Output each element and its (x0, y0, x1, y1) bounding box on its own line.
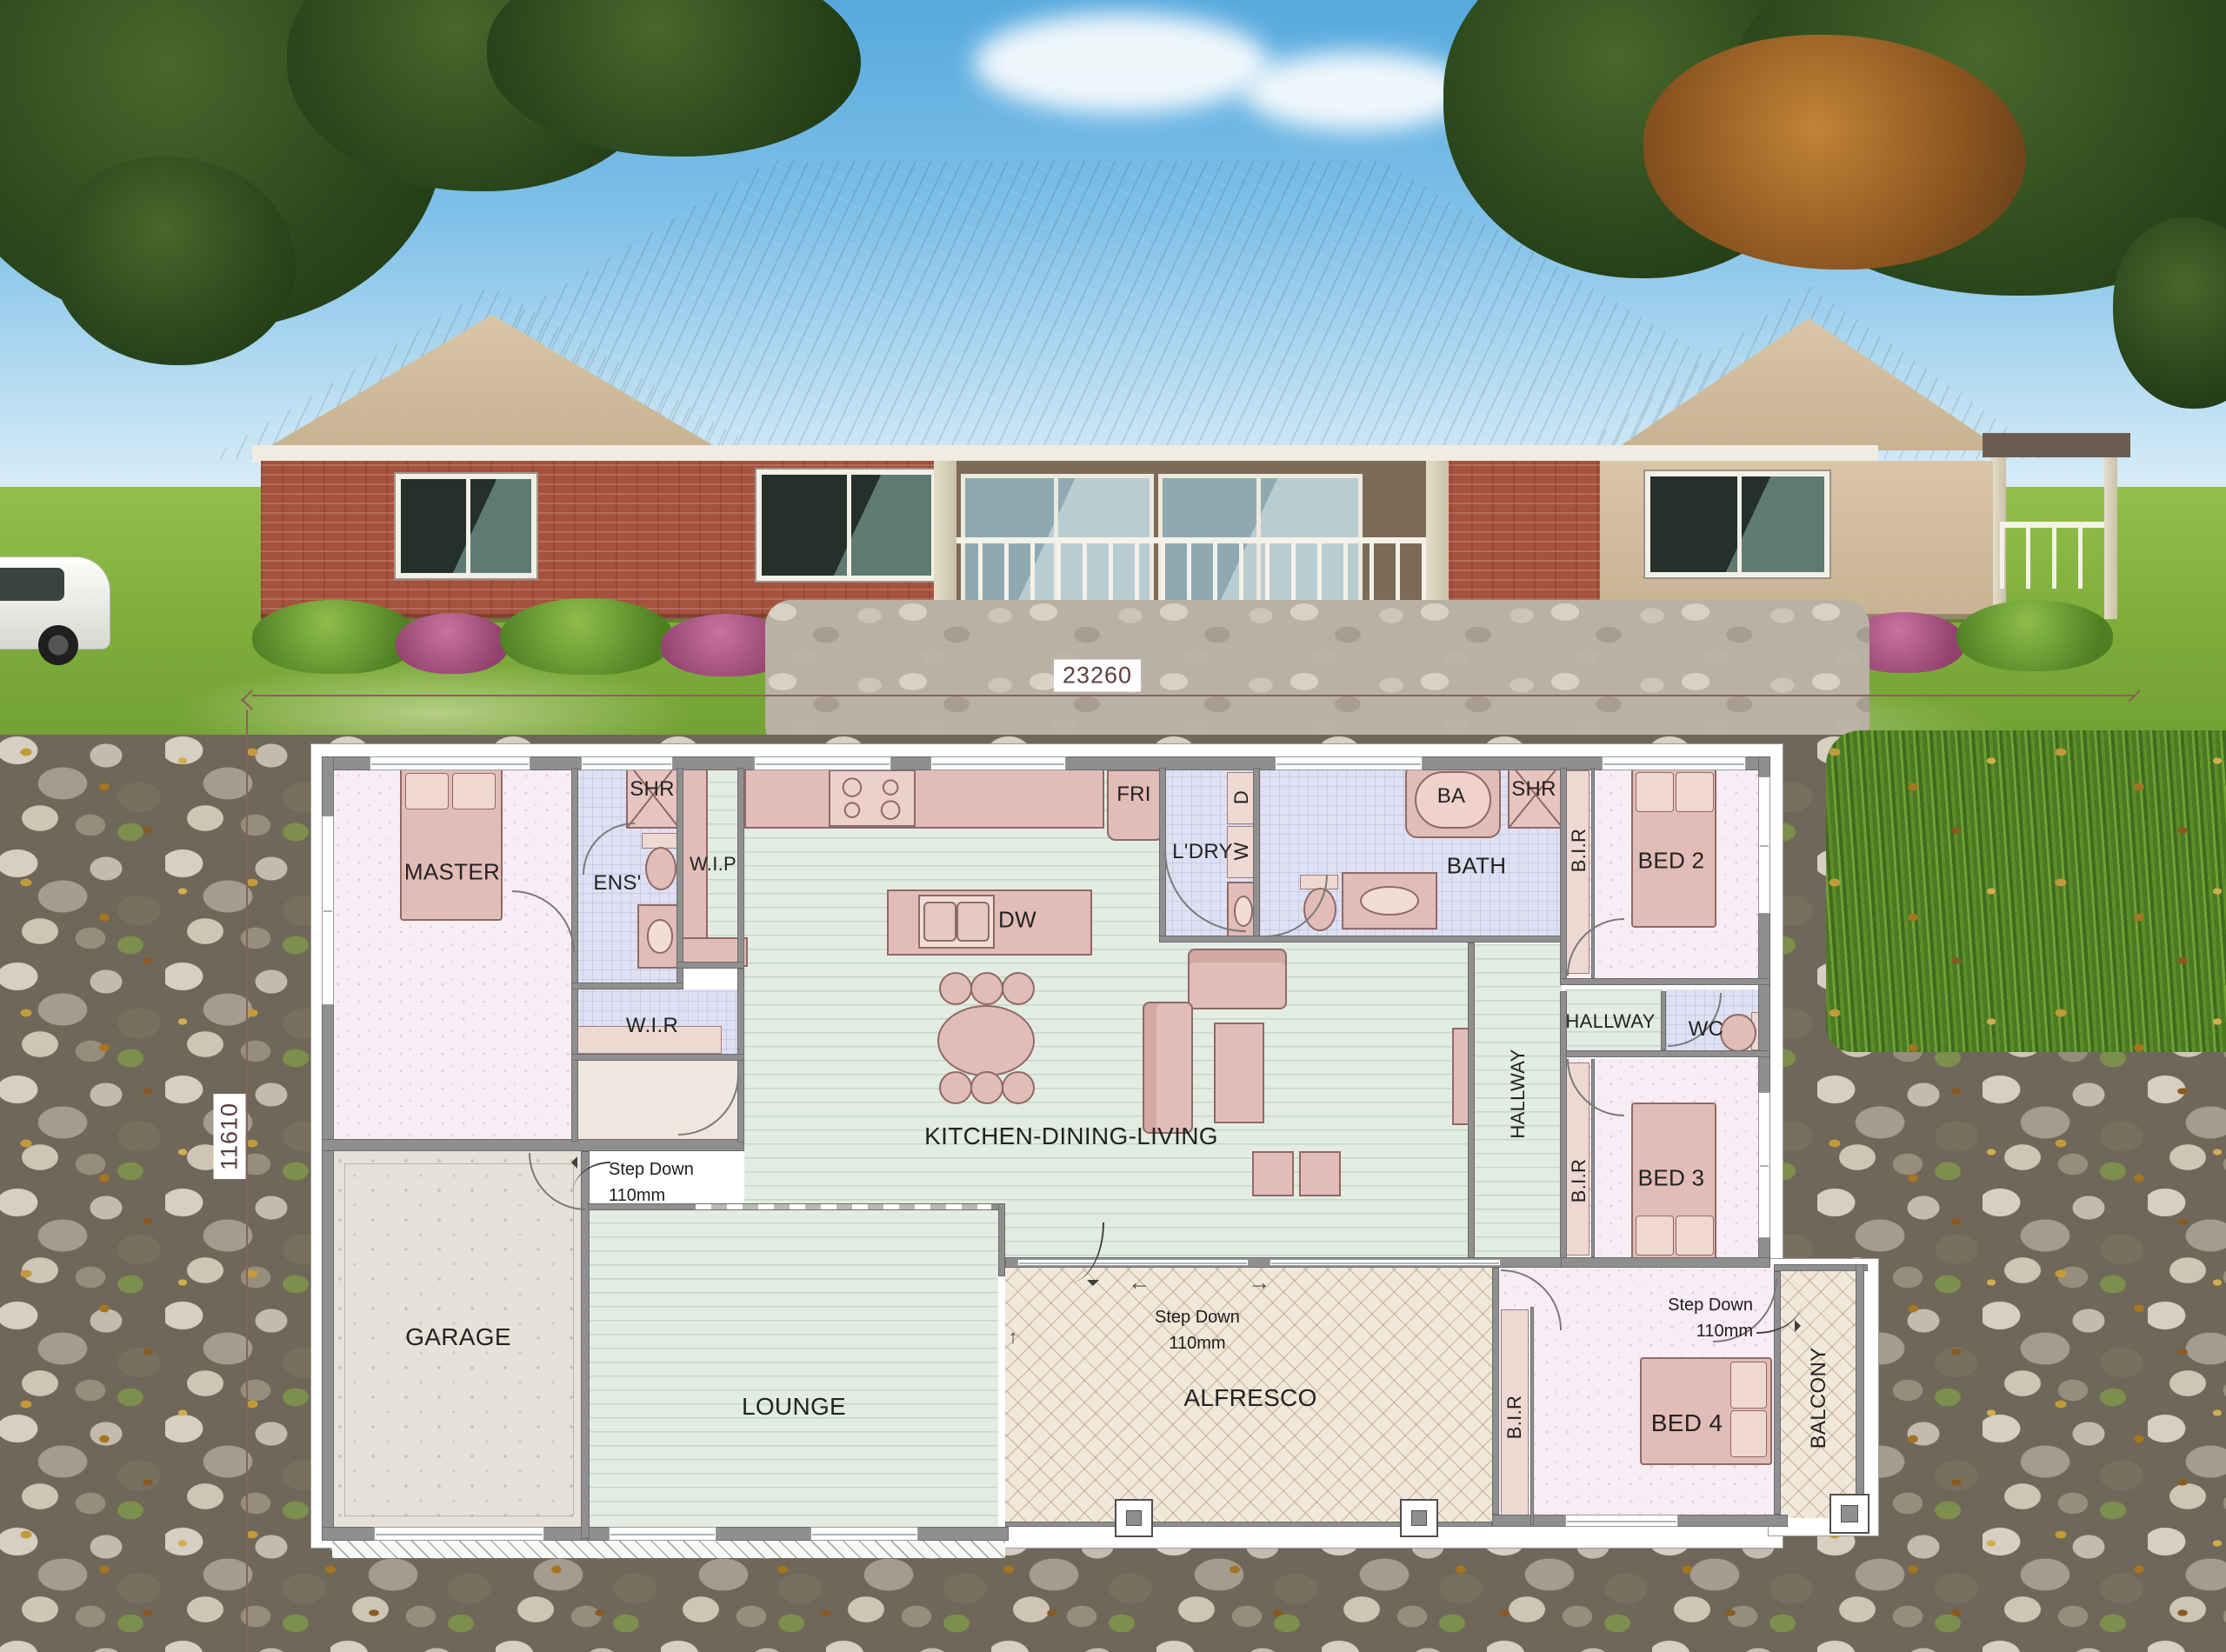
wall (1560, 1050, 1770, 1057)
room-label-bir-bed2: B.I.R (1568, 829, 1590, 872)
wall (1560, 1257, 1770, 1268)
room-label-kitchen-dining-living: KITCHEN-DINING-LIVING (924, 1122, 1218, 1150)
chair-icon (939, 1071, 972, 1104)
dimension-line-horizontal (252, 695, 2136, 696)
room-label-ensuite: ENS' (593, 871, 641, 896)
window (609, 1527, 716, 1541)
room-label-bed3: BED 3 (1638, 1165, 1705, 1192)
sliding-door-glass (1017, 1259, 1249, 1266)
flower-bush (396, 613, 509, 674)
alfresco-post (1400, 1499, 1438, 1537)
pillow-icon (1676, 772, 1714, 812)
room-label-bir-bed4: B.I.R (1503, 1396, 1526, 1439)
ottoman-icon (1252, 1151, 1294, 1196)
slide-arrow-right-icon: → (1248, 1269, 1270, 1296)
window (930, 756, 1066, 770)
chair-icon (970, 972, 1003, 1005)
wall (676, 768, 683, 989)
coffee-table-icon (1214, 1023, 1264, 1123)
room-label-laundry: L'DRY (1172, 840, 1233, 864)
wall (1492, 1268, 1499, 1515)
wall (676, 962, 744, 969)
wall (1774, 1264, 1868, 1271)
pillow-icon (1730, 1362, 1767, 1409)
chair-icon (970, 1071, 1003, 1104)
lounge-opening (696, 1204, 991, 1209)
room-label-wc: WC (1689, 1017, 1724, 1042)
window (1758, 1092, 1770, 1238)
bush (1956, 600, 2113, 671)
window (1275, 756, 1423, 770)
room-label-bed4: BED 4 (1651, 1409, 1723, 1437)
pillow-icon (1636, 1216, 1674, 1256)
bush (252, 600, 417, 674)
alfresco-post (1115, 1499, 1153, 1537)
window (1602, 756, 1746, 770)
car (0, 556, 110, 649)
bush (500, 598, 674, 675)
carport-roof (1983, 433, 2130, 457)
wall (1468, 943, 1475, 1268)
eave-fascia (252, 445, 1878, 463)
wall (322, 1139, 744, 1151)
window (1565, 1515, 1678, 1527)
room-label-bed2: BED 2 (1638, 848, 1705, 875)
chair-icon (939, 972, 972, 1005)
chair-icon (1002, 1071, 1035, 1104)
stove-icon (829, 769, 916, 827)
step-down-note-alfresco: Step Down 110mm (1155, 1304, 1240, 1356)
real-estate-render-with-floorplan: { "plan": { "dimensions": { "width": "23… (0, 0, 2226, 1652)
room-label-bath: BATH (1447, 853, 1507, 880)
pillow-icon (1676, 1216, 1714, 1256)
car-window (0, 568, 64, 601)
room-label-hallway-upper: HALLWAY (1565, 1010, 1655, 1033)
window-left-wing (396, 474, 537, 578)
dimension-width: 23260 (1054, 660, 1141, 692)
room-label-hallway-main: HALLWAY (1507, 1049, 1530, 1138)
room-label-wip: W.I.P (690, 853, 736, 876)
room-label-master: MASTER (404, 859, 500, 886)
ottoman-icon (1299, 1151, 1341, 1196)
wall (571, 768, 578, 1142)
dimension-height: 11610 (214, 1094, 246, 1179)
dimension-line-vertical (246, 709, 248, 1652)
dining-table-icon (937, 1005, 1035, 1076)
room-label-lounge: LOUNGE (742, 1393, 846, 1421)
arrowhead (565, 1156, 577, 1169)
lounge-floor (590, 1209, 998, 1530)
carport-post (2104, 457, 2117, 619)
driveway-apron (332, 1541, 1005, 1558)
toilet-icon-wc (1720, 1014, 1756, 1052)
wall (1560, 768, 1567, 985)
wall (1856, 1264, 1864, 1522)
cloud (974, 13, 1270, 113)
window (810, 1527, 918, 1541)
sofa-icon (1143, 1002, 1193, 1134)
floor-plan: ← → ↑ Step Down 110mm Step Down 110mm St… (322, 746, 1869, 1559)
sink-icon (918, 895, 995, 949)
car-wheel (38, 625, 78, 665)
window (1758, 776, 1770, 914)
lounge-arrow-icon: ↑ (1009, 1326, 1018, 1349)
pillow-icon (1730, 1410, 1767, 1457)
wall (571, 983, 683, 989)
window (754, 756, 891, 770)
fixture-label-dishwasher: DW (998, 907, 1036, 934)
step-down-note-balcony: Step Down 110mm (1640, 1292, 1753, 1344)
carport-railing (2000, 522, 2104, 589)
garage-door-opening (374, 1527, 544, 1541)
room-label-bir-bed3: B.I.R (1568, 1159, 1590, 1202)
wall (1560, 978, 1770, 985)
wall (1530, 1307, 1534, 1525)
arrowhead (1795, 1320, 1807, 1332)
chair-icon (1002, 972, 1035, 1005)
wall (998, 1203, 1005, 1276)
window-right-wing (1645, 471, 1829, 577)
slide-arrow-left-icon: ← (1128, 1269, 1150, 1296)
fixture-label-fridge: FRI (1116, 783, 1151, 807)
window (322, 816, 334, 1005)
room-label-alfresco: ALFRESCO (1183, 1384, 1316, 1412)
window-centre-left (756, 470, 936, 581)
room-label-garage: GARAGE (405, 1323, 511, 1351)
wall (1661, 991, 1666, 1050)
window (370, 756, 530, 770)
pillow-icon (1636, 772, 1674, 812)
fixture-label-washer: W (1230, 842, 1253, 860)
pillow-icon (452, 773, 496, 809)
room-label-shower-bath: SHR (1511, 777, 1556, 802)
toilet-icon-ensuite (645, 847, 676, 890)
arrowhead (1087, 1280, 1099, 1292)
room-label-shower-ensuite: SHR (630, 777, 675, 802)
wall (571, 1054, 744, 1061)
step-down-note-garage: Step Down 110mm (609, 1156, 694, 1209)
pillow-icon (405, 773, 449, 809)
cloud (1243, 52, 1470, 130)
wall (737, 768, 744, 969)
wall (1253, 768, 1260, 943)
sofa-icon (1188, 949, 1287, 1009)
room-label-balcony: BALCONY (1807, 1348, 1831, 1449)
room-label-wir: W.I.R (626, 1014, 678, 1038)
cobble-path (765, 600, 1869, 752)
balcony-post (1829, 1494, 1869, 1534)
kitchen-bench-icon (744, 768, 1104, 829)
fixture-label-dryer: D (1230, 790, 1253, 804)
fixture-label-bath: BA (1437, 784, 1466, 809)
window (581, 756, 673, 770)
vanity-icon-bath (1342, 872, 1437, 929)
sliding-door-glass (1270, 1259, 1501, 1266)
wall (1159, 936, 1567, 943)
